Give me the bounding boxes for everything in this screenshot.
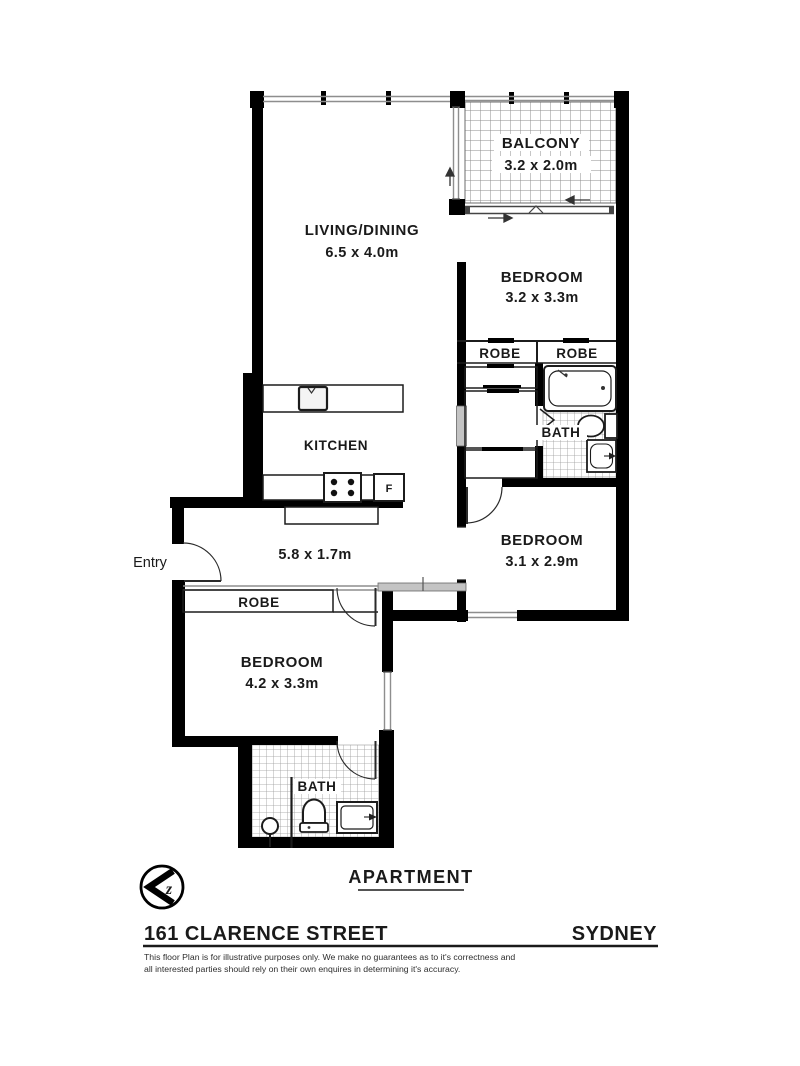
robe-right-label: ROBE (556, 346, 597, 361)
kitchen-label: KITCHEN (304, 438, 368, 453)
bedroom-bottom-right-dims: 3.1 x 2.9m (505, 554, 578, 570)
bedroom-bottom-left-label: BEDROOM (241, 654, 324, 671)
floor-plan-drawing: F (0, 0, 800, 1066)
robe-hallway-label: ROBE (238, 595, 279, 610)
fridge-label: F (386, 483, 393, 495)
robe-left-label: ROBE (479, 346, 520, 361)
bedroom-top-right-label: BEDROOM (501, 269, 584, 286)
property-type-title: APARTMENT (348, 867, 473, 887)
room-labels: BALCONY 3.2 x 2.0m LIVING/DINING 6.5 x 4… (133, 134, 598, 794)
bedroom-top-right-dims: 3.2 x 3.3m (505, 290, 578, 306)
robe-hallway-box (183, 586, 378, 612)
balcony-dims: 3.2 x 2.0m (504, 158, 577, 174)
stove-icon (324, 473, 361, 502)
footer-titles: APARTMENT 161 CLARENCE STREET SYDNEY Thi… (143, 867, 658, 974)
sink-upper-icon (587, 440, 616, 472)
street-address: 161 CLARENCE STREET (144, 923, 388, 945)
city-label: SYDNEY (572, 923, 657, 945)
living-dining-dims: 6.5 x 4.0m (325, 245, 398, 261)
bath-lower-label: BATH (298, 779, 337, 794)
doors (183, 487, 502, 779)
bath-upper-label: BATH (542, 425, 581, 440)
hallway-dims: 5.8 x 1.7m (278, 547, 351, 563)
bedroom-bottom-right-label: BEDROOM (501, 532, 584, 549)
disclaimer-line-2: all interested parties should rely on th… (144, 964, 460, 974)
toilet-lower-icon (300, 800, 328, 833)
living-dining-label: LIVING/DINING (305, 222, 419, 239)
bedroom-bottom-left-dims: 4.2 x 3.3m (245, 676, 318, 692)
disclaimer-line-1: This floor Plan is for illustrative purp… (144, 952, 515, 962)
compass-north-letter: z (165, 881, 173, 898)
entry-label: Entry (133, 555, 168, 571)
fridge-icon: F (374, 474, 404, 501)
balcony-label: BALCONY (502, 135, 580, 152)
floor-plan-page: F (0, 0, 800, 1066)
kitchen-bench (285, 507, 378, 524)
bathtub-icon (544, 366, 616, 411)
balcony-floor-hatch (465, 102, 616, 203)
compass-icon: z (141, 866, 183, 908)
sink-lower-icon (337, 802, 377, 833)
